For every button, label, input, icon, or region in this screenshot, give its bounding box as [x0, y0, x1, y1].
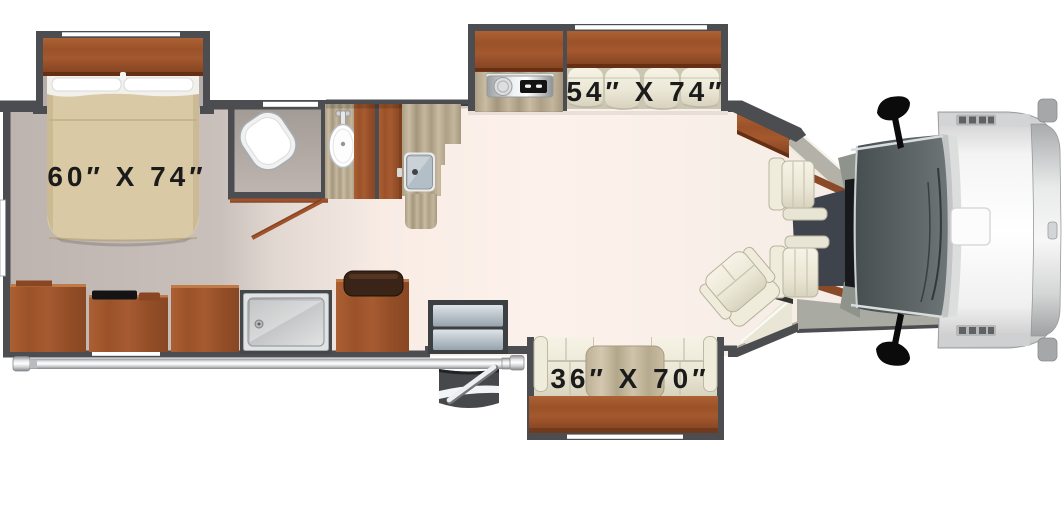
svg-text:60″ X 74″: 60″ X 74″	[47, 161, 206, 192]
svg-text:54″ X 74″: 54″ X 74″	[566, 76, 725, 107]
svg-text:36″ X 70″: 36″ X 70″	[550, 363, 709, 394]
